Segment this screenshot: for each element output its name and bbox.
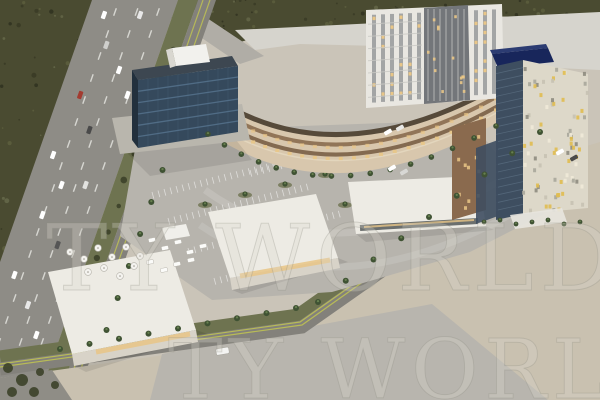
brush-speckle — [2, 127, 4, 129]
office-side-face — [132, 70, 138, 148]
rendering-canvas: TY WORLD TY WORLD — [0, 0, 600, 400]
mosaic-tile — [530, 142, 533, 146]
lit-window — [339, 146, 343, 149]
lit-window — [464, 113, 468, 116]
lit-window — [484, 69, 487, 72]
lit-window — [452, 57, 455, 60]
window-strip — [381, 14, 385, 102]
mosaic-tile — [560, 180, 563, 184]
brush-speckle — [40, 135, 42, 137]
mosaic-tile — [523, 144, 526, 148]
palm-crown — [483, 172, 485, 174]
lit-window — [393, 139, 397, 142]
brush-speckle — [21, 5, 24, 8]
lit-window — [263, 134, 267, 137]
lit-window — [421, 142, 425, 145]
palm-crown — [207, 132, 209, 134]
brush-speckle — [4, 63, 6, 65]
brush-speckle — [235, 14, 237, 16]
mosaic-tile — [575, 180, 578, 184]
palm-crown — [236, 316, 238, 318]
brush-speckle — [374, 6, 378, 10]
palm-crown — [473, 136, 475, 138]
tree — [36, 368, 44, 376]
mosaic-tile — [539, 93, 542, 97]
lit-window — [391, 25, 394, 28]
mosaic-tile — [533, 84, 536, 88]
lit-window — [457, 158, 460, 162]
mosaic-tile — [551, 79, 554, 83]
mosaic-tile — [526, 115, 529, 119]
lit-window — [409, 72, 412, 75]
palm-crown — [330, 174, 332, 176]
lit-window — [475, 41, 478, 44]
mosaic-tile — [552, 102, 555, 106]
mosaic-tile — [576, 115, 579, 119]
lit-window — [409, 63, 412, 66]
lit-window — [275, 138, 279, 141]
lit-window — [434, 69, 437, 72]
brush-speckle — [54, 15, 56, 17]
mosaic-tile — [574, 162, 577, 166]
brush-speckle — [361, 11, 365, 15]
lit-window — [391, 92, 394, 95]
mosaic-tile — [580, 184, 583, 188]
lit-window — [427, 51, 430, 54]
mosaic-tile — [566, 151, 569, 155]
brush-speckle — [401, 6, 403, 8]
brush-speckle — [4, 198, 9, 203]
lit-window — [275, 149, 279, 152]
lit-window — [462, 75, 465, 78]
lit-window — [484, 31, 487, 34]
hotel-mosaic-face — [523, 60, 588, 214]
lit-window — [400, 16, 403, 19]
tree — [29, 387, 39, 397]
lit-window — [484, 21, 487, 24]
lit-window — [441, 90, 444, 93]
brush-speckle — [541, 9, 545, 13]
brush-speckle — [336, 2, 338, 4]
mosaic-tile — [534, 156, 537, 160]
lit-window — [391, 73, 394, 76]
lit-window — [326, 146, 330, 149]
lit-window — [467, 166, 470, 170]
brush-speckle — [38, 14, 40, 16]
mosaic-tile — [562, 98, 565, 102]
mosaic-tile — [545, 105, 548, 109]
brush-speckle — [515, 13, 518, 16]
mosaic-tile — [524, 163, 527, 167]
mosaic-tile — [539, 123, 542, 127]
lit-window — [251, 140, 255, 143]
palm-crown — [244, 192, 246, 194]
palm-crown — [223, 143, 225, 145]
brush-speckle — [32, 110, 34, 112]
lit-window — [460, 77, 463, 80]
mosaic-tile — [531, 125, 534, 129]
palm-crown — [118, 337, 120, 339]
mosaic-tile — [561, 192, 564, 196]
lit-window — [352, 145, 356, 148]
palm-crown — [240, 152, 242, 154]
mosaic-tile — [569, 133, 572, 137]
lit-window — [421, 131, 425, 134]
palm-crown — [495, 124, 497, 126]
brush-speckle — [227, 10, 229, 12]
lit-window — [433, 58, 436, 61]
lit-window — [479, 106, 483, 109]
window-strip — [408, 13, 412, 100]
brush-speckle — [60, 15, 63, 18]
lit-window — [437, 26, 440, 29]
mosaic-tile — [578, 148, 581, 152]
brush-speckle — [251, 11, 253, 13]
brush-speckle — [253, 3, 256, 6]
mosaic-tile — [548, 139, 551, 143]
mosaic-tile — [580, 109, 583, 113]
mosaic-tile — [528, 82, 531, 86]
brush-speckle — [329, 21, 333, 25]
mosaic-tile — [555, 68, 558, 72]
palm-crown — [369, 171, 371, 173]
brush-speckle — [344, 6, 346, 8]
mosaic-tile — [572, 179, 575, 183]
palm-crown — [451, 146, 453, 148]
lit-window — [300, 154, 304, 157]
lit-window — [454, 15, 457, 18]
brush-speckle — [66, 61, 70, 65]
brush-speckle — [254, 10, 257, 13]
brush-speckle — [233, 1, 235, 3]
brush-speckle — [223, 25, 225, 27]
lit-window — [339, 157, 343, 160]
brush-speckle — [334, 18, 336, 20]
brush-speckle — [34, 57, 36, 59]
lit-window — [365, 155, 369, 158]
mosaic-tile — [580, 133, 583, 137]
mosaic-tile — [544, 154, 547, 158]
lit-window — [467, 199, 470, 203]
tree — [51, 381, 59, 389]
aerial-rendering: TY WORLD TY WORLD — [0, 0, 600, 400]
brush-speckle — [22, 1, 25, 4]
lit-window — [263, 145, 267, 148]
window-strip — [372, 15, 376, 103]
palm-crown — [293, 170, 295, 172]
tree — [16, 374, 28, 386]
palm-crown — [539, 130, 541, 132]
mosaic-tile — [567, 159, 570, 163]
palm-crown — [312, 173, 314, 175]
brush-speckle — [34, 9, 38, 13]
lit-window — [484, 12, 487, 15]
lit-window — [475, 22, 478, 25]
watermark-bottom: TY WORLD — [168, 323, 600, 400]
lit-window — [382, 92, 385, 95]
palm-crown — [511, 151, 513, 153]
mosaic-tile — [586, 91, 589, 95]
lit-window — [460, 81, 463, 84]
lit-window — [433, 18, 436, 21]
lit-window — [450, 120, 454, 123]
mosaic-tile — [542, 80, 545, 84]
lit-window — [379, 142, 383, 145]
palm-crown — [410, 162, 412, 164]
brush-speckle — [246, 17, 250, 21]
brush-speckle — [18, 119, 20, 121]
lit-window — [484, 59, 487, 62]
residential-tower — [366, 4, 504, 108]
mosaic-tile — [544, 195, 547, 199]
lit-window — [435, 126, 439, 129]
palm-crown — [147, 332, 149, 334]
lit-window — [400, 63, 403, 66]
mosaic-tile — [570, 137, 573, 141]
brush-speckle — [304, 18, 307, 21]
bush — [120, 177, 127, 184]
mosaic-tile — [583, 115, 586, 119]
palm-crown — [456, 194, 458, 196]
tower-recessed-core — [424, 5, 470, 104]
lit-window — [373, 17, 376, 20]
lit-window — [464, 163, 467, 167]
lit-window — [288, 152, 292, 155]
mosaic-tile — [584, 82, 587, 86]
palm-crown — [105, 328, 107, 330]
lit-window — [379, 153, 383, 156]
brush-speckle — [505, 12, 507, 14]
lit-window — [251, 129, 255, 132]
brush-speckle — [31, 73, 36, 78]
brush-speckle — [8, 22, 11, 25]
brush-speckle — [252, 25, 255, 28]
lit-window — [326, 157, 330, 160]
tree — [7, 387, 17, 397]
brush-speckle — [395, 6, 397, 8]
mosaic-tile — [557, 193, 560, 197]
palm-crown — [161, 168, 163, 170]
palm-crown — [88, 342, 90, 344]
brush-speckle — [16, 23, 20, 27]
mosaic-tile — [569, 129, 572, 133]
brush-speckle — [526, 0, 529, 3]
lit-window — [313, 145, 317, 148]
palm-crown — [430, 155, 432, 157]
mosaic-tile — [566, 173, 569, 177]
lit-window — [484, 40, 487, 43]
mosaic-tile — [533, 168, 536, 172]
mosaic-tile — [522, 191, 525, 195]
mosaic-tile — [583, 72, 586, 76]
palm-crown — [284, 182, 286, 184]
lit-window — [365, 144, 369, 147]
lit-window — [407, 146, 411, 149]
lit-window — [463, 90, 466, 93]
brush-speckle — [39, 8, 41, 10]
brush-speckle — [0, 85, 3, 88]
mosaic-tile — [564, 179, 567, 183]
brush-speckle — [533, 8, 536, 11]
lit-window — [393, 150, 397, 153]
mosaic-tile — [563, 71, 566, 75]
mosaic-tile — [553, 178, 556, 182]
brush-speckle — [34, 83, 38, 87]
palm-crown — [150, 200, 152, 202]
palm-crown — [257, 160, 259, 162]
lit-window — [418, 24, 421, 27]
brush-speckle — [49, 9, 53, 13]
lit-window — [407, 135, 411, 138]
palm-crown — [275, 166, 277, 168]
brush-speckle — [2, 197, 5, 200]
mosaic-tile — [570, 142, 573, 146]
watermark-middle: TY WORLD — [46, 205, 600, 312]
tree — [3, 363, 13, 373]
mosaic-tile — [555, 148, 558, 152]
brush-speckle — [0, 228, 2, 230]
mosaic-tile — [575, 142, 578, 146]
mosaic-tile — [551, 98, 554, 102]
lit-window — [435, 137, 439, 140]
lit-window — [352, 156, 356, 159]
brush-speckle — [53, 66, 55, 68]
mosaic-tile — [533, 80, 536, 84]
lit-window — [475, 69, 478, 72]
brush-speckle — [353, 13, 355, 15]
lit-window — [475, 79, 478, 82]
palm-crown — [59, 347, 61, 349]
brush-speckle — [222, 21, 224, 23]
brush-speckle — [325, 22, 329, 26]
mosaic-tile — [572, 146, 575, 150]
mosaic-tile — [524, 67, 527, 71]
mosaic-tile — [573, 115, 576, 119]
lit-window — [313, 156, 317, 159]
brush-speckle — [8, 141, 12, 145]
lit-window — [288, 141, 292, 144]
brush-speckle — [444, 4, 447, 7]
brush-speckle — [272, 0, 275, 3]
palm-crown — [350, 174, 352, 176]
lit-window — [300, 143, 304, 146]
mosaic-tile — [539, 163, 542, 167]
mosaic-tile — [536, 184, 539, 188]
mosaic-tile — [527, 151, 530, 155]
window-strip — [399, 14, 403, 101]
lit-window — [477, 135, 480, 139]
brush-speckle — [2, 37, 5, 40]
